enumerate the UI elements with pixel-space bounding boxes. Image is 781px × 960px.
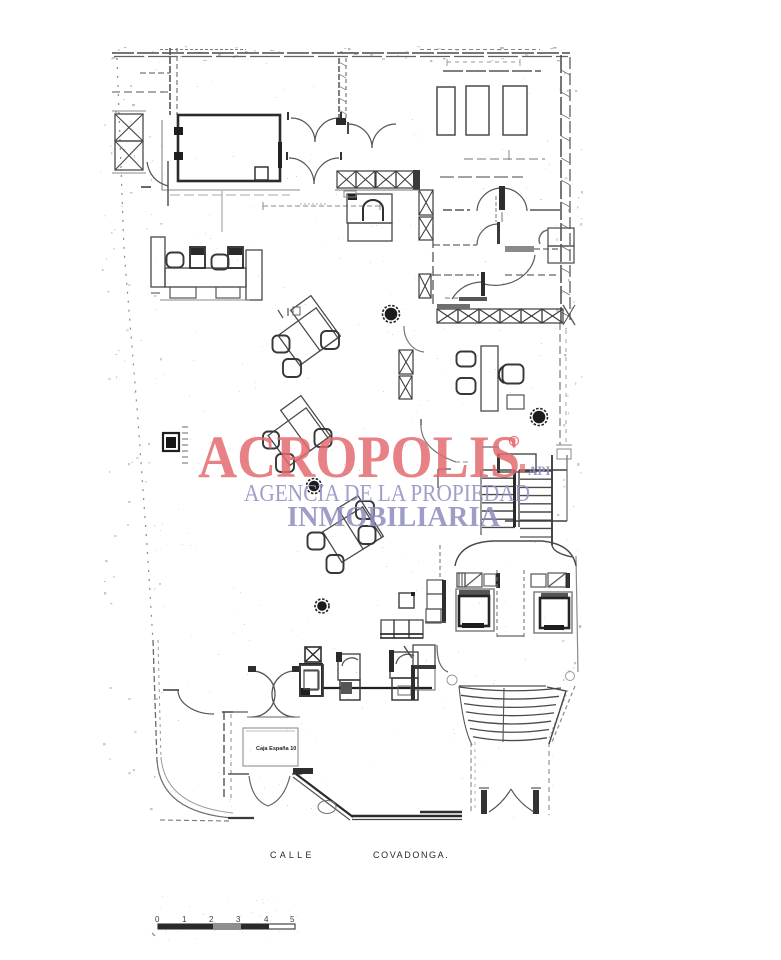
svg-text:2: 2 [209, 915, 214, 924]
svg-text:Caja España 10: Caja España 10 [256, 746, 296, 752]
svg-text:API: API [528, 463, 550, 478]
svg-text:5: 5 [290, 915, 295, 924]
svg-text:4: 4 [264, 915, 269, 924]
svg-text:0: 0 [155, 915, 160, 924]
svg-text:3: 3 [236, 915, 241, 924]
svg-text:R: R [512, 440, 517, 446]
svg-text:1: 1 [182, 915, 187, 924]
svg-text:COVADONGA.: COVADONGA. [373, 850, 449, 860]
svg-text:CALLE: CALLE [270, 850, 315, 860]
svg-text:INMOBILIARIA: INMOBILIARIA [287, 501, 500, 533]
